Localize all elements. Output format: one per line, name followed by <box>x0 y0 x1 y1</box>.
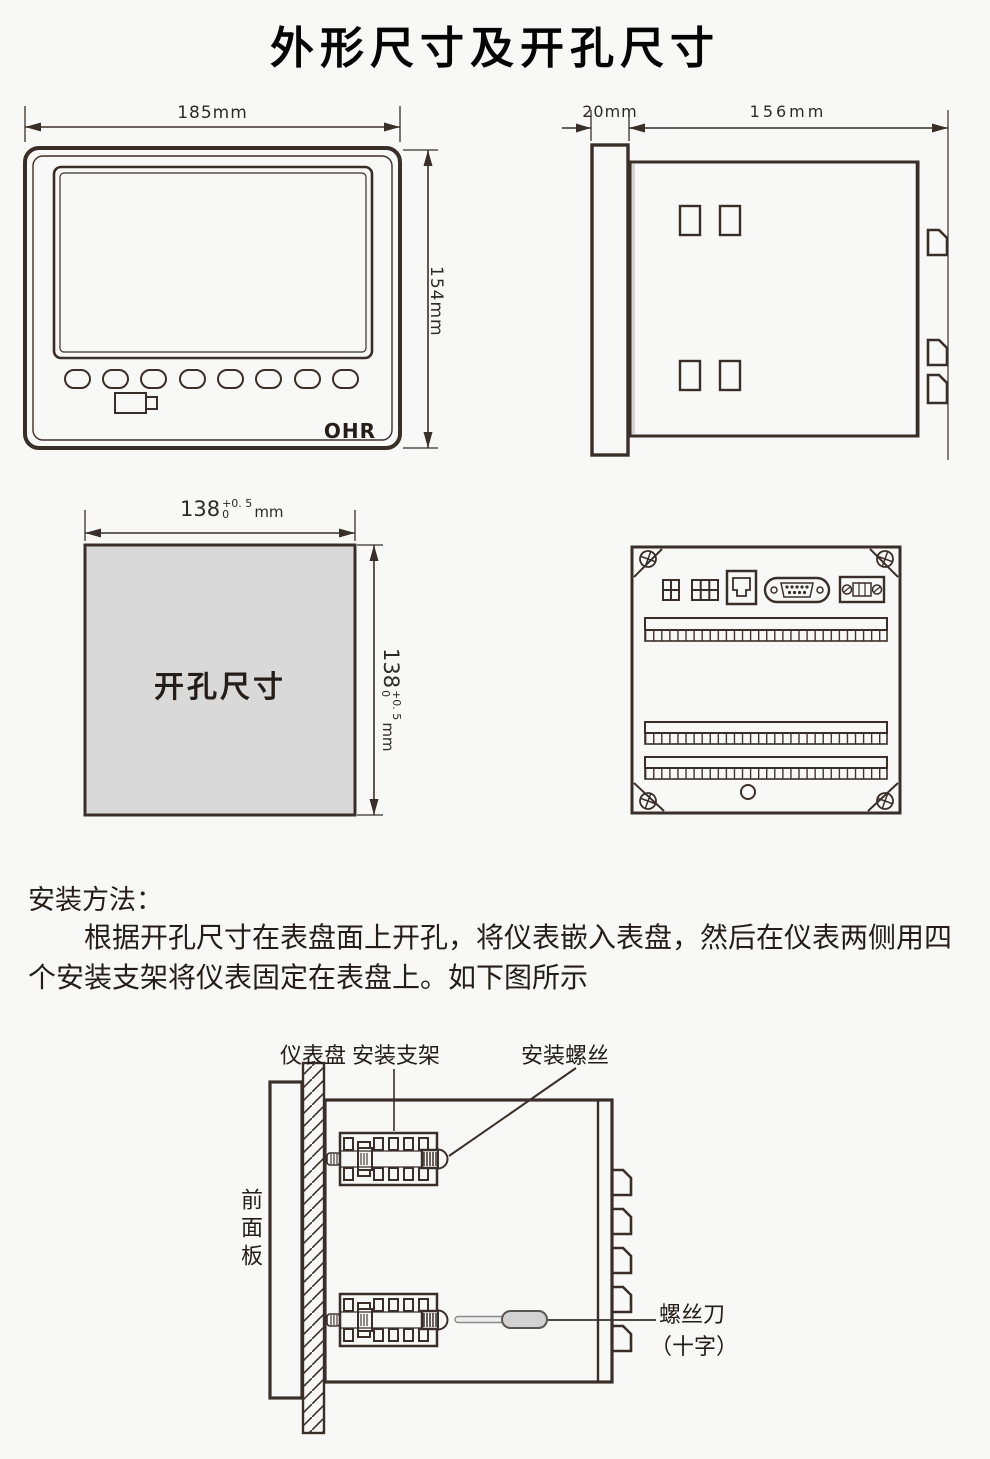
brand-logo: OHR <box>322 419 378 443</box>
back-panel-drawing <box>632 547 900 813</box>
label-front-panel: 前面板 <box>234 1188 266 1278</box>
device-screen <box>54 167 372 358</box>
device-front-outline <box>25 148 400 448</box>
screw-icon <box>638 791 659 812</box>
side-view-drawing <box>562 110 948 460</box>
install-method-heading: 安装方法： <box>28 878 163 917</box>
front-height-dim-label: 154mm <box>426 266 446 336</box>
front-width-dim-label: 185mm <box>155 103 270 123</box>
front-view-drawing <box>25 106 438 448</box>
side-depth-dim-label: 156mm <box>730 102 846 121</box>
terminal-strip <box>645 618 887 641</box>
side-vents <box>680 206 740 390</box>
page-title: 外形尺寸及开孔尺寸 <box>0 12 990 76</box>
screw-icon <box>875 549 896 570</box>
usb-port-icon <box>115 393 157 413</box>
manual-page: 外形尺寸及开孔尺寸 185mm 154mm OHR 20mm 156mm 138… <box>0 0 990 1459</box>
dim-tolerance-lower: 0 <box>222 509 252 520</box>
label-screwdriver: 螺丝刀 <box>659 1297 725 1329</box>
rj45-port-icon <box>727 571 756 604</box>
installation-drawing <box>270 1063 656 1433</box>
mounting-bracket <box>327 1133 448 1185</box>
label-screwdriver-type: （十字） <box>650 1329 738 1361</box>
db9-connector-icon <box>765 578 829 602</box>
mounting-bracket <box>327 1294 448 1346</box>
install-paragraph-line2: 个安装支架将仪表固定在表盘上。如下图所示 <box>28 956 588 996</box>
technical-drawing-canvas <box>0 0 990 1459</box>
label-mounting-screw: 安装螺丝 <box>521 1038 609 1070</box>
cutout-area-label: 开孔尺寸 <box>85 662 355 706</box>
terminal-2pin-icon <box>663 580 679 600</box>
front-buttons <box>65 370 358 388</box>
instrument-panel-hatched <box>303 1063 324 1433</box>
side-bezel <box>592 145 628 455</box>
cutout-width-dim-label: 138 +0. 5 0 mm <box>180 498 284 522</box>
label-instrument-panel: 仪表盘 <box>280 1038 346 1070</box>
dim-unit: mm <box>378 722 398 751</box>
side-bezel-dim-label: 20mm <box>578 102 642 121</box>
mounting-hole <box>741 785 755 799</box>
front-panel-plate <box>270 1082 302 1398</box>
dim-value: 138 <box>380 648 402 688</box>
side-body <box>630 162 918 436</box>
rear-tabs <box>612 1170 631 1351</box>
dim-tolerance-upper: +0. 5 <box>391 690 402 720</box>
dim-tolerance-lower: 0 <box>380 690 391 720</box>
dim-unit: mm <box>254 502 283 522</box>
screw-leader-line <box>449 1068 576 1156</box>
terminal-strip <box>645 722 887 744</box>
terminal-3pin-icon <box>692 580 718 600</box>
power-terminal-icon <box>840 577 884 602</box>
dim-tolerance: +0. 5 0 <box>380 690 402 720</box>
screwdriver-icon <box>455 1311 547 1328</box>
label-mounting-bracket: 安装支架 <box>352 1038 440 1070</box>
dim-tolerance: +0. 5 0 <box>222 498 252 520</box>
cutout-height-dim-label: 138 +0. 5 0 mm <box>378 648 402 752</box>
dim-value: 138 <box>180 498 220 520</box>
screw-icon <box>638 549 659 570</box>
install-paragraph-line1: 根据开孔尺寸在表盘面上开孔，将仪表嵌入表盘，然后在仪表两侧用四 <box>28 916 952 956</box>
side-rear-tabs <box>928 230 947 403</box>
terminal-strip <box>645 757 887 779</box>
screw-icon <box>875 791 896 812</box>
